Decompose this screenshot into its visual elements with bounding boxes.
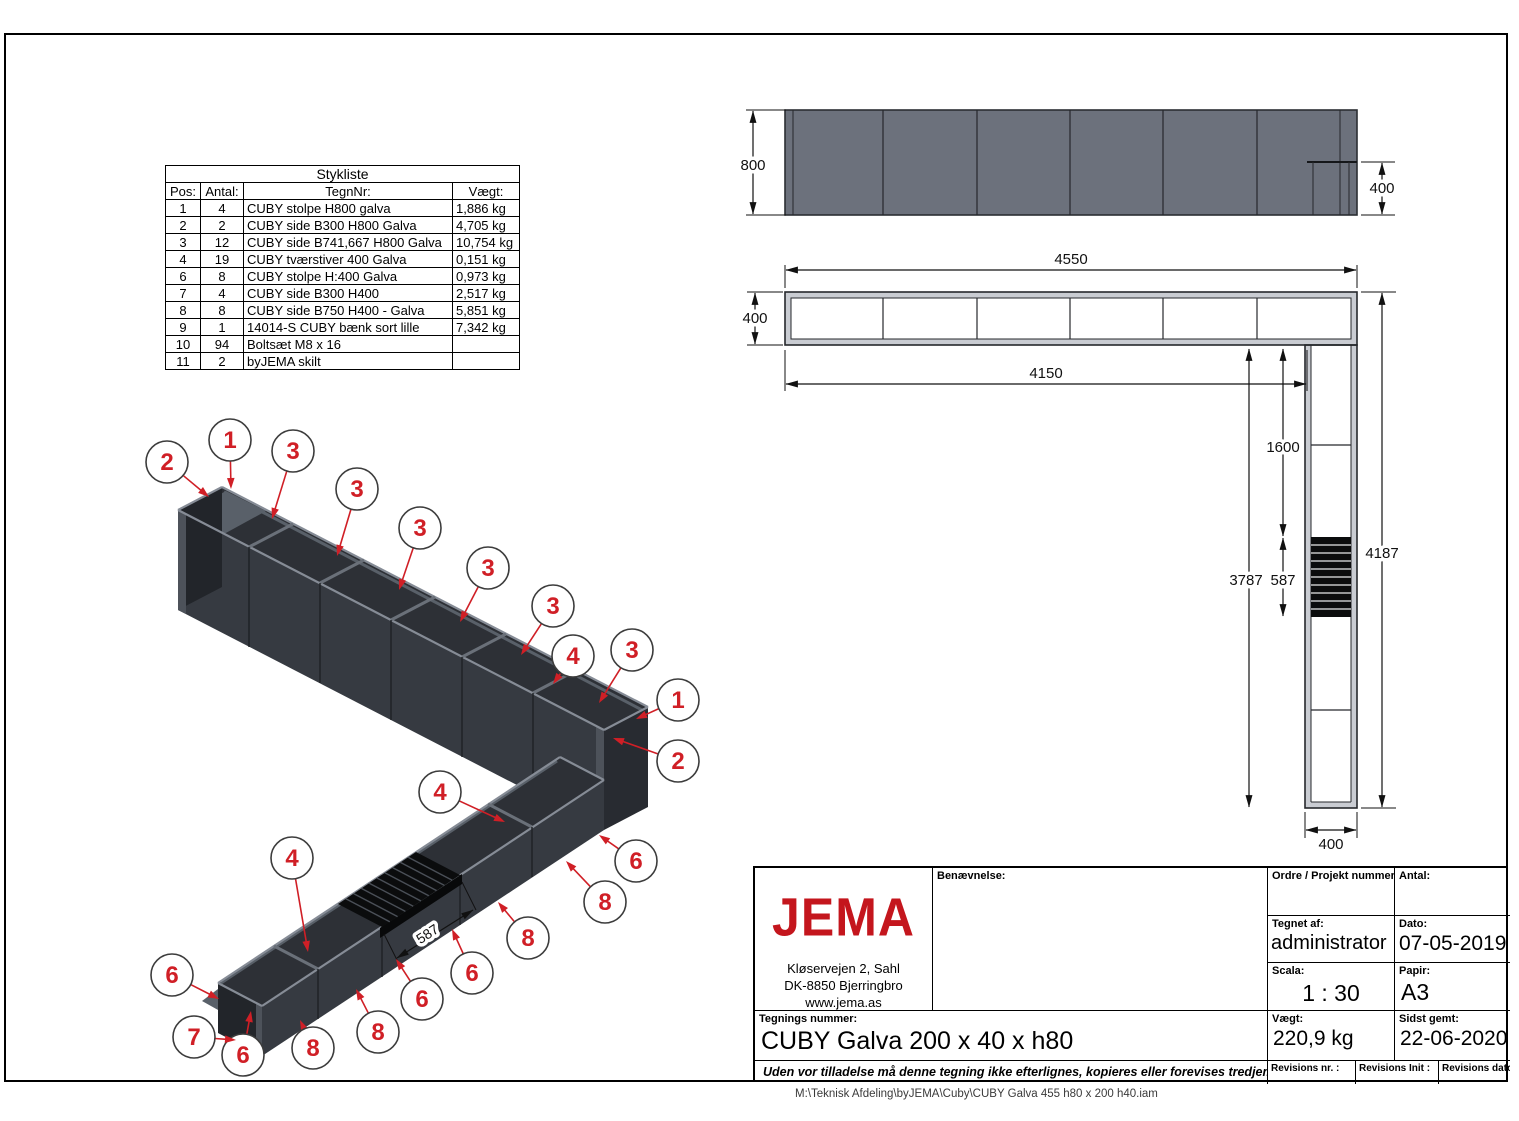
- scala-label: Scala:: [1268, 963, 1394, 979]
- dim-elevation-end-height: 400: [1369, 180, 1394, 197]
- dim-plan-leg-total: 4187: [1365, 545, 1398, 562]
- antal-cell: Antal:: [1394, 868, 1510, 915]
- balloon-3: 3: [399, 507, 441, 590]
- address-line-3: www.jema.as: [755, 994, 932, 1010]
- address-line-2: DK-8850 Bjerringbro: [755, 977, 932, 994]
- revisions-init-label: Revisions Init :: [1356, 1061, 1438, 1076]
- tegnings-nummer-value: CUBY Galva 200 x 40 x h80: [755, 1027, 1267, 1056]
- balloon-1: 1: [209, 419, 251, 489]
- balloon-leader: [402, 548, 414, 583]
- benaevnelse-label: Benævnelse:: [933, 868, 1267, 884]
- jema-logo: JEMA: [755, 886, 932, 949]
- dato-label: Dato:: [1395, 916, 1510, 932]
- balloon-2: 2: [146, 441, 209, 497]
- balloon-number: 3: [286, 438, 299, 465]
- sidst-gemt-value: 22-06-2020: [1395, 1027, 1510, 1051]
- balloon-number: 1: [223, 427, 236, 454]
- tegnings-nummer-cell: Tegnings nummer: CUBY Galva 200 x 40 x h…: [755, 1010, 1267, 1060]
- balloon-number: 3: [350, 476, 363, 503]
- balloon-3: 3: [272, 430, 314, 519]
- dim-plan-leg-inner: 3787: [1229, 572, 1262, 589]
- papir-value: A3: [1395, 979, 1510, 1006]
- balloon-3: 3: [336, 468, 378, 556]
- iso-post-left: [178, 510, 186, 614]
- disclaimer-text: Uden vor tilladelse må denne tegning ikk…: [755, 1061, 1267, 1083]
- balloon-arrowhead-icon: [599, 835, 610, 844]
- dim-elevation-height: 800: [740, 157, 765, 174]
- dim-plan-bench: 587: [1270, 572, 1295, 589]
- balloon-8: 8: [356, 989, 399, 1053]
- balloon-number: 1: [671, 687, 684, 714]
- papir-label: Papir:: [1395, 963, 1510, 979]
- balloon-leader: [525, 624, 541, 649]
- tegnings-nummer-label: Tegnings nummer:: [755, 1011, 1267, 1027]
- balloon-number: 8: [306, 1035, 319, 1062]
- balloon-number: 3: [413, 515, 426, 542]
- balloon-6: 6: [599, 835, 657, 882]
- file-path-note: M:\Teknisk Afdeling\byJEMA\Cuby\CUBY Gal…: [795, 1088, 1158, 1100]
- sidst-gemt-cell: Sidst gemt: 22-06-2020: [1394, 1010, 1510, 1060]
- balloon-leader: [191, 985, 212, 996]
- balloon-number: 4: [285, 845, 299, 872]
- balloon-8: 8: [498, 902, 549, 959]
- revisions-init-cell: Revisions Init :: [1355, 1060, 1438, 1084]
- balloon-number: 4: [433, 779, 447, 806]
- logo-cell: JEMA Kløservejen 2, Sahl DK-8850 Bjerrin…: [755, 868, 932, 1010]
- company-address: Kløservejen 2, Sahl DK-8850 Bjerringbro …: [755, 960, 932, 1010]
- tegnet-af-cell: Tegnet af: administrator: [1267, 915, 1394, 962]
- scala-value: 1 : 30: [1268, 980, 1394, 1007]
- ordre-label: Ordre / Projekt nummer:: [1268, 868, 1394, 884]
- elevation-view: 800 400: [740, 110, 1395, 215]
- sidst-gemt-label: Sidst gemt:: [1395, 1011, 1510, 1027]
- balloon-number: 8: [598, 889, 611, 916]
- revisions-nr-cell: Revisions nr. :: [1267, 1060, 1355, 1084]
- dato-value: 07-05-2019: [1395, 932, 1510, 956]
- dim-plan-leg-width: 400: [1318, 836, 1343, 853]
- balloon-number: 8: [371, 1019, 384, 1046]
- dim-plan-inner-length: 4150: [1029, 365, 1062, 382]
- balloon-number: 2: [671, 748, 684, 775]
- dim-plan-to-bench: 1600: [1266, 439, 1299, 456]
- scala-cell: Scala: 1 : 30: [1267, 962, 1394, 1010]
- balloon-6: 6: [151, 954, 219, 999]
- balloon-number: 4: [566, 643, 580, 670]
- vaegt-value: 220,9 kg: [1268, 1027, 1394, 1051]
- dim-plan-width: 400: [742, 310, 767, 327]
- antal-label: Antal:: [1395, 868, 1510, 884]
- balloon-number: 2: [160, 449, 173, 476]
- drawing-sheet: Stykliste Pos: Antal: TegnNr: Vægt: 14CU…: [0, 0, 1519, 1121]
- balloon-number: 3: [481, 555, 494, 582]
- balloon-number: 8: [521, 925, 534, 952]
- balloon-leader: [339, 509, 351, 548]
- balloon-number: 6: [629, 848, 642, 875]
- ordre-cell: Ordre / Projekt nummer:: [1267, 868, 1394, 915]
- vaegt-cell: Vægt: 220,9 kg: [1267, 1010, 1394, 1060]
- revisions-dato-label: Revisions dato :: [1439, 1061, 1510, 1076]
- balloon-number: 6: [165, 962, 178, 989]
- balloon-leader: [274, 471, 286, 511]
- benaevnelse-cell: Benævnelse:: [932, 868, 1267, 1010]
- balloon-6: 6: [451, 929, 493, 994]
- plan-view: 4550 400 4150 1600 587 3787 4187: [742, 251, 1398, 853]
- balloon-3: 3: [460, 547, 509, 622]
- address-line-1: Kløservejen 2, Sahl: [755, 960, 932, 977]
- title-block: JEMA Kløservejen 2, Sahl DK-8850 Bjerrin…: [753, 866, 1508, 1082]
- balloon-arrowhead-icon: [452, 929, 460, 941]
- revisions-nr-label: Revisions nr. :: [1268, 1061, 1355, 1076]
- dim-plan-total-length: 4550: [1054, 251, 1087, 268]
- balloon-1: 1: [636, 679, 699, 721]
- tegnet-af-label: Tegnet af:: [1268, 916, 1394, 932]
- balloon-number: 3: [546, 593, 559, 620]
- vaegt-label: Vægt:: [1268, 1011, 1394, 1027]
- balloon-number: 3: [625, 637, 638, 664]
- papir-cell: Papir: A3: [1394, 962, 1510, 1010]
- disclaimer-cell: Uden vor tilladelse må denne tegning ikk…: [755, 1060, 1267, 1084]
- iso-view: 587 21333334312468866884676: [146, 419, 699, 1076]
- dato-cell: Dato: 07-05-2019: [1394, 915, 1510, 962]
- revisions-dato-cell: Revisions dato :: [1438, 1060, 1510, 1084]
- balloon-6: 6: [396, 959, 443, 1020]
- balloon-arrowhead-icon: [227, 478, 235, 489]
- tegnet-af-value: administrator: [1268, 932, 1394, 955]
- balloon-leader: [464, 587, 479, 615]
- balloon-number: 7: [187, 1024, 200, 1051]
- balloon-number: 6: [465, 960, 478, 987]
- balloon-leader: [183, 475, 203, 491]
- balloon-number: 6: [415, 986, 428, 1013]
- balloon-leader: [572, 867, 591, 887]
- balloon-number: 6: [236, 1042, 249, 1069]
